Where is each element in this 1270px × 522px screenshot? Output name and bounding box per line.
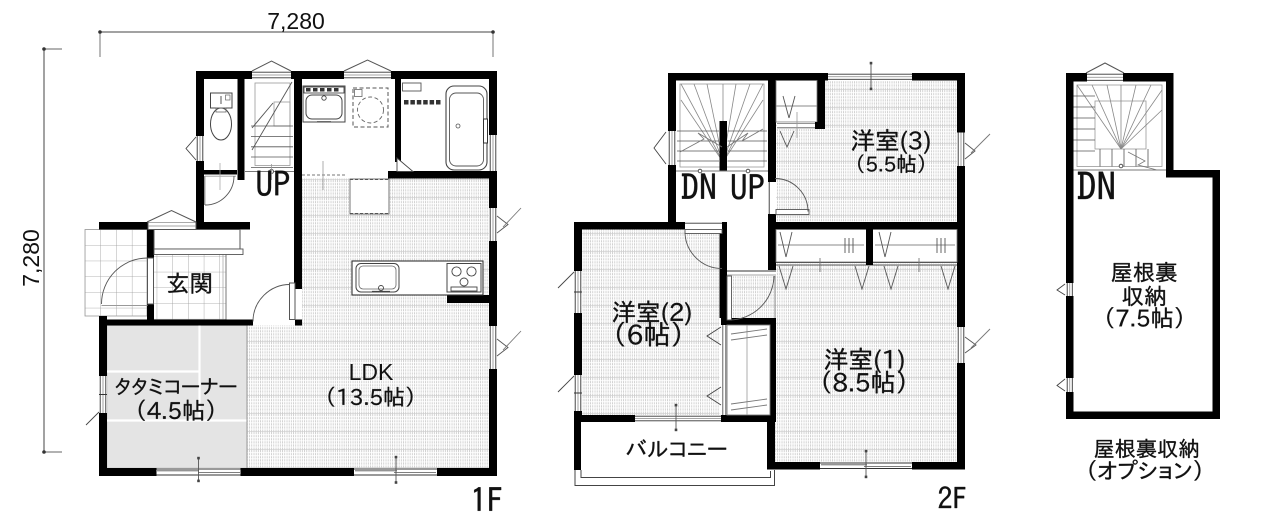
svg-text:7,280: 7,280 bbox=[267, 8, 325, 34]
svg-text:7,280: 7,280 bbox=[18, 229, 44, 287]
svg-text:LDK: LDK bbox=[349, 359, 394, 385]
